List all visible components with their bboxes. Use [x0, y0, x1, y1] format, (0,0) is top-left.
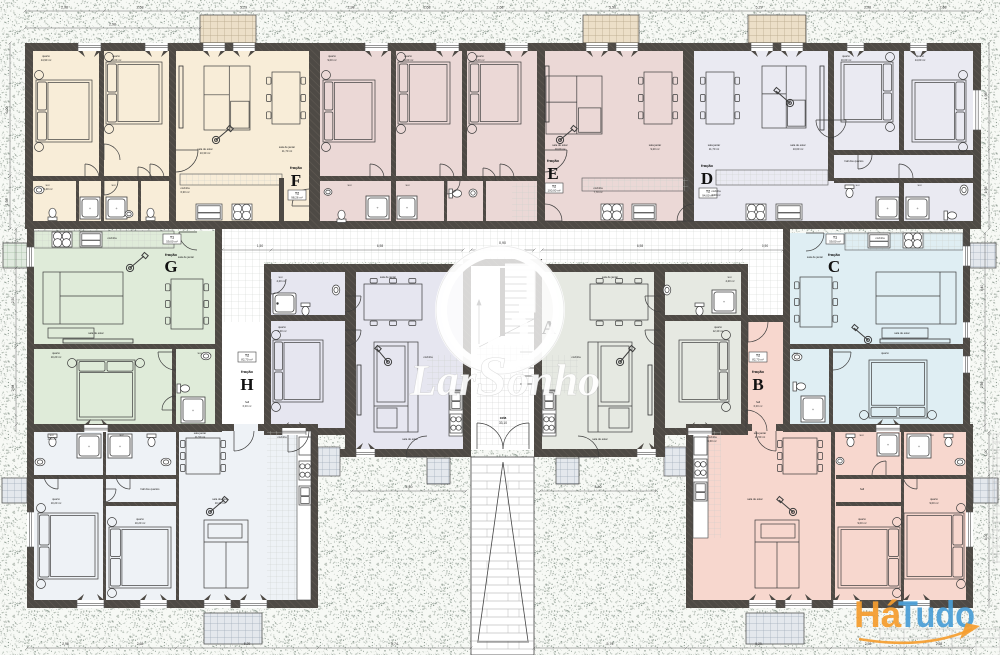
svg-text:cozinha: cozinha — [593, 186, 603, 190]
svg-text:sala de jantar: sala de jantar — [279, 145, 295, 149]
svg-text:fração: fração — [752, 369, 765, 374]
svg-text:LarSonho: LarSonho — [409, 346, 600, 408]
svg-text:w.c.: w.c. — [860, 434, 865, 437]
svg-text:9,00 m²: 9,00 m² — [475, 58, 484, 62]
svg-text:hall dos quartos: hall dos quartos — [845, 159, 865, 163]
svg-text:D: D — [701, 169, 713, 188]
svg-text:4,98: 4,98 — [984, 93, 988, 100]
svg-text:quarto: quarto — [404, 54, 412, 58]
svg-text:H: H — [240, 375, 253, 394]
svg-text:B: B — [752, 375, 763, 394]
svg-text:w.c.: w.c. — [120, 434, 125, 437]
svg-text:4,20 m²: 4,20 m² — [725, 279, 734, 283]
svg-text:quarto: quarto — [112, 54, 120, 58]
svg-text:hall: hall — [245, 400, 250, 404]
svg-text:C: C — [828, 257, 840, 276]
svg-text:w.c.: w.c. — [279, 276, 284, 279]
svg-text:G: G — [164, 257, 177, 276]
svg-text:cozinha: cozinha — [180, 186, 190, 190]
svg-text:59,00 m²: 59,00 m² — [829, 240, 840, 244]
svg-text:sala jantar: sala jantar — [708, 143, 721, 147]
svg-text:quarto: quarto — [858, 517, 866, 521]
svg-text:2,98: 2,98 — [109, 23, 116, 27]
svg-text:quarto: quarto — [714, 325, 722, 329]
svg-text:10,20 m²: 10,20 m² — [51, 355, 62, 359]
svg-text:2,98: 2,98 — [62, 642, 69, 646]
svg-text:sala jantar: sala jantar — [754, 431, 767, 435]
svg-text:quarto: quarto — [42, 54, 50, 58]
svg-text:6,60 m²: 6,60 m² — [707, 439, 716, 443]
svg-text:2,98: 2,98 — [864, 6, 871, 10]
svg-text:w.c.: w.c. — [794, 352, 799, 355]
svg-text:cozinha: cozinha — [875, 236, 885, 240]
svg-text:1,98: 1,98 — [5, 199, 9, 206]
svg-text:sala de estar: sala de estar — [592, 437, 607, 441]
svg-text:10,00 m²: 10,00 m² — [555, 147, 566, 151]
svg-text:13,30 m²: 13,30 m² — [200, 151, 211, 155]
svg-text:10,00 m²: 10,00 m² — [841, 58, 852, 62]
svg-text:sala de estar: sala de estar — [747, 497, 762, 501]
svg-text:13,00 m²: 13,00 m² — [793, 147, 804, 151]
svg-text:quarto: quarto — [930, 497, 938, 501]
svg-text:sala de estar: sala de estar — [790, 143, 805, 147]
svg-text:0,90: 0,90 — [499, 241, 506, 245]
svg-text:w.c.: w.c. — [198, 352, 203, 355]
svg-text:14,00 m²: 14,00 m² — [403, 58, 414, 62]
svg-text:2,98: 2,98 — [61, 6, 68, 10]
svg-text:4,40 m²: 4,40 m² — [43, 187, 52, 191]
svg-text:9,20 m²: 9,20 m² — [650, 147, 659, 151]
svg-text:9,00 m²: 9,00 m² — [857, 521, 866, 525]
svg-text:Há: Há — [854, 594, 902, 635]
svg-text:6,00 m²: 6,00 m² — [243, 404, 252, 408]
svg-text:6,98: 6,98 — [637, 244, 643, 248]
svg-text:w.c.: w.c. — [856, 184, 861, 187]
svg-text:2,98: 2,98 — [11, 385, 15, 392]
svg-text:2,98: 2,98 — [865, 642, 872, 646]
svg-text:quarto: quarto — [52, 351, 60, 355]
svg-text:sala jantar: sala jantar — [194, 431, 207, 435]
svg-text:4,40: 4,40 — [406, 485, 413, 489]
svg-text:sala de estar: sala de estar — [552, 143, 567, 147]
svg-text:33,10: 33,10 — [499, 421, 507, 425]
svg-text:5,29: 5,29 — [244, 642, 251, 646]
svg-text:4,40: 4,40 — [980, 285, 984, 292]
svg-text:quarto: quarto — [136, 517, 144, 521]
svg-text:cozinha: cozinha — [711, 189, 721, 193]
svg-text:14,90 m²: 14,90 m² — [41, 58, 52, 62]
svg-text:12,40 m²: 12,40 m² — [713, 329, 724, 333]
svg-text:59,00 m²: 59,00 m² — [166, 240, 177, 244]
svg-text:2,68: 2,68 — [137, 642, 144, 646]
svg-text:quarto: quarto — [476, 54, 484, 58]
svg-text:w.c.: w.c. — [930, 434, 935, 437]
svg-text:5,50: 5,50 — [609, 6, 616, 10]
svg-text:100,00 m²: 100,00 m² — [547, 189, 560, 193]
svg-text:sala de jantar: sala de jantar — [602, 275, 618, 279]
svg-text:w.c.: w.c. — [348, 184, 353, 187]
svg-text:sala de estar: sala de estar — [212, 497, 227, 501]
svg-text:2,68: 2,68 — [940, 6, 947, 10]
svg-text:sala de estar: sala de estar — [88, 331, 103, 335]
svg-text:quarto: quarto — [52, 497, 60, 501]
svg-text:quarto: quarto — [278, 325, 286, 329]
svg-text:2,68: 2,68 — [936, 642, 943, 646]
svg-text:quarto: quarto — [328, 54, 336, 58]
svg-text:2,68: 2,68 — [497, 6, 504, 10]
svg-text:sala de estar: sala de estar — [197, 147, 212, 151]
svg-text:0,90: 0,90 — [762, 244, 768, 248]
svg-text:9,00 m²: 9,00 m² — [929, 501, 938, 505]
svg-text:14,00 m²: 14,00 m² — [915, 58, 926, 62]
svg-text:6,00 m²: 6,00 m² — [754, 404, 763, 408]
svg-text:2,98: 2,98 — [348, 6, 355, 10]
svg-text:8,00: 8,00 — [984, 534, 988, 541]
svg-text:5,74: 5,74 — [391, 642, 398, 646]
svg-text:cozinha: cozinha — [107, 236, 117, 240]
svg-text:fração: fração — [290, 165, 303, 170]
svg-text:E: E — [547, 164, 558, 183]
svg-text:6,00: 6,00 — [5, 107, 9, 114]
svg-text:10,20 m²: 10,20 m² — [135, 521, 146, 525]
svg-text:2,68: 2,68 — [424, 6, 431, 10]
svg-text:quarto: quarto — [842, 54, 850, 58]
svg-text:sala de estar: sala de estar — [894, 331, 909, 335]
svg-text:4,40 m²: 4,40 m² — [47, 437, 56, 441]
svg-text:9,40 m²: 9,40 m² — [277, 329, 286, 333]
svg-text:F: F — [291, 171, 301, 190]
svg-text:6,30 m²: 6,30 m² — [180, 190, 189, 194]
svg-text:cozinha: cozinha — [277, 435, 287, 439]
svg-text:98,26 m²: 98,26 m² — [291, 196, 302, 200]
svg-text:11,70 m²: 11,70 m² — [709, 147, 720, 151]
svg-text:w.c.: w.c. — [728, 276, 733, 279]
svg-text:sala de jantar: sala de jantar — [807, 255, 823, 259]
svg-text:2,50: 2,50 — [11, 297, 15, 304]
svg-text:fração: fração — [547, 158, 560, 163]
svg-text:1,50: 1,50 — [257, 244, 263, 248]
svg-text:4,20 m²: 4,20 m² — [276, 279, 285, 283]
svg-text:w.c.: w.c. — [406, 184, 411, 187]
svg-text:6,30 m²: 6,30 m² — [711, 193, 720, 197]
svg-text:11,50 m²: 11,50 m² — [195, 435, 206, 439]
svg-text:quarto: quarto — [916, 54, 924, 58]
svg-text:hall: hall — [756, 400, 761, 404]
svg-text:w.c.: w.c. — [46, 184, 51, 187]
svg-text:w.c.: w.c. — [50, 434, 55, 437]
svg-text:7,70 m²: 7,70 m² — [593, 190, 602, 194]
svg-text:2,98: 2,98 — [980, 382, 984, 389]
svg-text:10,20 m²: 10,20 m² — [51, 501, 62, 505]
svg-text:quarto: quarto — [881, 351, 889, 355]
svg-text:2,68: 2,68 — [137, 6, 144, 10]
svg-text:10,20 m²: 10,20 m² — [215, 501, 226, 505]
svg-text:fração: fração — [701, 163, 714, 168]
svg-text:5,29: 5,29 — [755, 642, 762, 646]
svg-text:w.c.: w.c. — [918, 184, 923, 187]
svg-text:1,98: 1,98 — [984, 187, 988, 194]
svg-text:sala de jantar: sala de jantar — [178, 255, 194, 259]
svg-text:sala jantar: sala jantar — [649, 143, 662, 147]
svg-text:sala de jantar: sala de jantar — [380, 275, 396, 279]
svg-text:Tudo: Tudo — [898, 594, 975, 635]
svg-text:5,74: 5,74 — [607, 642, 614, 646]
svg-text:cota: cota — [500, 416, 507, 420]
svg-text:5,29: 5,29 — [240, 6, 247, 10]
svg-text:hall: hall — [860, 487, 865, 491]
svg-text:9,00 m²: 9,00 m² — [327, 58, 336, 62]
svg-text:4,40: 4,40 — [595, 485, 602, 489]
svg-text:82,70 m²: 82,70 m² — [752, 358, 763, 362]
svg-text:82,70 m²: 82,70 m² — [241, 358, 252, 362]
svg-text:11,70 m²: 11,70 m² — [282, 149, 293, 153]
svg-text:sala de estar: sala de estar — [402, 437, 417, 441]
svg-text:hall dos quartos: hall dos quartos — [141, 487, 161, 491]
svg-text:14,00 m²: 14,00 m² — [111, 58, 122, 62]
svg-text:5,29: 5,29 — [756, 6, 763, 10]
svg-text:w.c.: w.c. — [112, 184, 117, 187]
svg-text:cozinha: cozinha — [707, 435, 717, 439]
svg-text:fração: fração — [241, 369, 254, 374]
svg-text:1,00: 1,00 — [984, 450, 988, 457]
svg-text:6,98: 6,98 — [377, 244, 383, 248]
svg-text:11,50 m²: 11,50 m² — [755, 435, 766, 439]
